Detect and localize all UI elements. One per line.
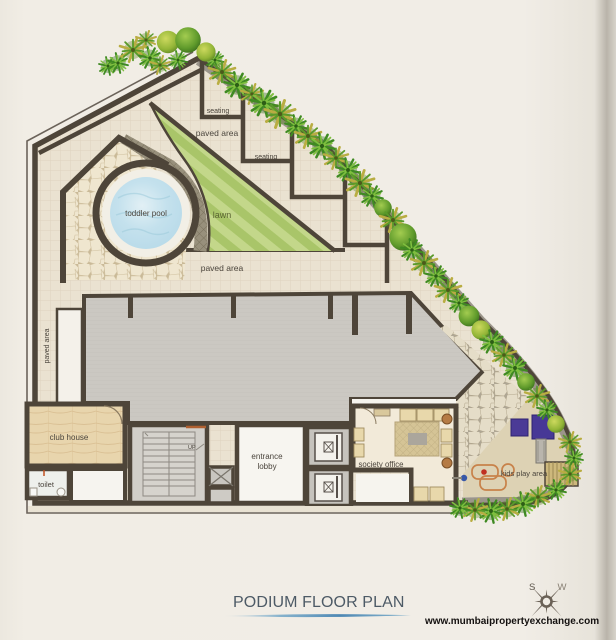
svg-text:kids play area: kids play area — [501, 469, 548, 478]
svg-text:entrance: entrance — [251, 452, 283, 461]
svg-text:lawn: lawn — [213, 210, 232, 220]
svg-text:PODIUM FLOOR PLAN: PODIUM FLOOR PLAN — [233, 594, 405, 611]
svg-text:UP: UP — [188, 445, 196, 451]
svg-text:S: S — [529, 582, 535, 593]
svg-text:paved area: paved area — [44, 328, 51, 363]
svg-text:toilet: toilet — [38, 480, 55, 489]
svg-text:paved area: paved area — [201, 263, 244, 273]
svg-text:seating: seating — [207, 108, 230, 115]
svg-text:www.mumbaipropertyexchange.com: www.mumbaipropertyexchange.com — [424, 616, 599, 627]
svg-text:paved area: paved area — [196, 128, 239, 138]
svg-text:lobby: lobby — [257, 462, 276, 471]
svg-text:toddler pool: toddler pool — [125, 209, 167, 218]
svg-text:seating: seating — [255, 154, 278, 161]
svg-text:club house: club house — [50, 433, 89, 442]
svg-text:society office: society office — [359, 460, 404, 469]
svg-text:W: W — [558, 582, 567, 593]
